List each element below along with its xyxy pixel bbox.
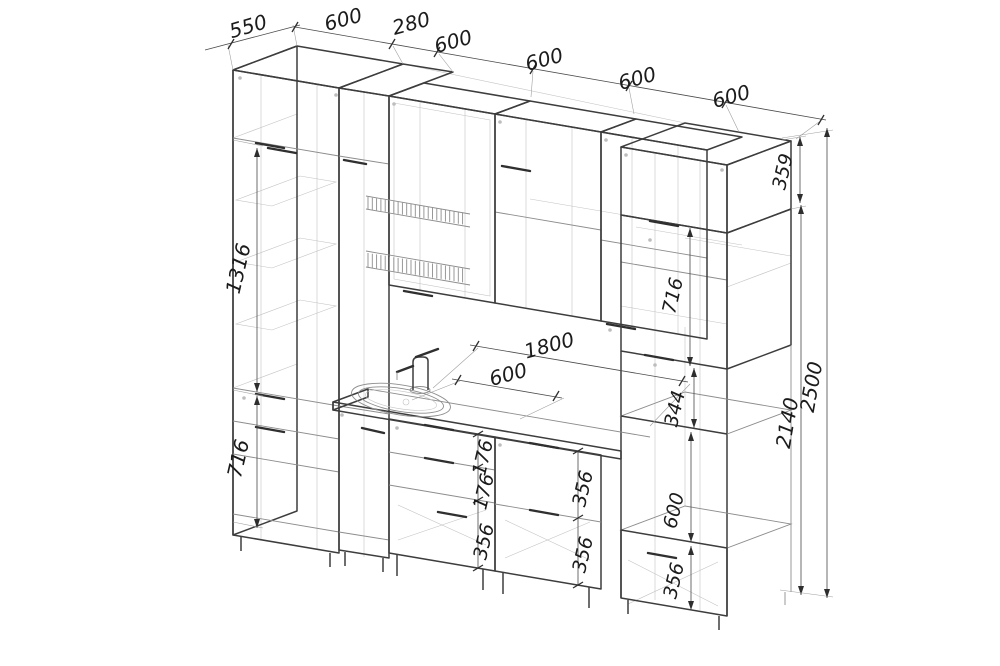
drawer-handle: [256, 427, 284, 432]
faucet-lever: [416, 349, 438, 357]
dim-right-600: 600: [659, 491, 689, 531]
dim-counter-1800: 1800: [521, 327, 576, 363]
dim-right-359: 359: [768, 152, 798, 192]
kitchen-cabinet-drawing: 550 600 280 600 600 600 600 1316 716 180…: [0, 0, 1000, 666]
dim-top-280: 280: [390, 7, 433, 40]
faucet: [397, 349, 438, 394]
drawer-handle: [530, 510, 558, 515]
dim-top-600c: 600: [523, 43, 566, 76]
dim-mid-356b: 356: [568, 535, 598, 575]
dim-right-356: 356: [659, 561, 689, 601]
right-tall-cabinet: [621, 123, 791, 630]
dim-sink-176a: 176: [468, 438, 498, 478]
cabinet-handle: [362, 428, 384, 433]
cabinet-handle: [645, 355, 673, 360]
narrow-column-cabinet: [339, 64, 453, 572]
dim-top-600a: 600: [322, 3, 365, 36]
dim-left-1316: 1316: [221, 241, 256, 296]
drawer-handle: [438, 512, 466, 517]
dim-right-344: 344: [660, 389, 690, 429]
drawer-handle: [425, 458, 453, 463]
dim-overall-2500: 2500: [795, 360, 827, 414]
left-tall-cabinet: [233, 46, 403, 567]
dimension-lines: [205, 22, 833, 610]
dim-top-600e: 600: [710, 80, 753, 113]
dish-rack-lower: [366, 251, 470, 285]
dim-top-600b: 600: [432, 25, 475, 58]
dim-counter-600: 600: [487, 358, 530, 391]
dim-right-716: 716: [658, 276, 688, 316]
cabinet-handle: [344, 160, 366, 164]
drawer-handle: [425, 425, 453, 430]
dim-top-550: 550: [226, 9, 269, 43]
technical-drawing-page: 550 600 280 600 600 600 600 1316 716 180…: [0, 0, 1000, 666]
drawer-handle: [648, 553, 676, 558]
faucet-spout: [397, 366, 413, 372]
fitting-dots: [238, 76, 724, 447]
drawer-handle: [530, 443, 558, 448]
drawer-handle: [256, 394, 284, 399]
dish-rack-upper: [366, 196, 470, 227]
dim-mid-356a: 356: [568, 469, 598, 509]
dim-left-716: 716: [222, 437, 254, 480]
